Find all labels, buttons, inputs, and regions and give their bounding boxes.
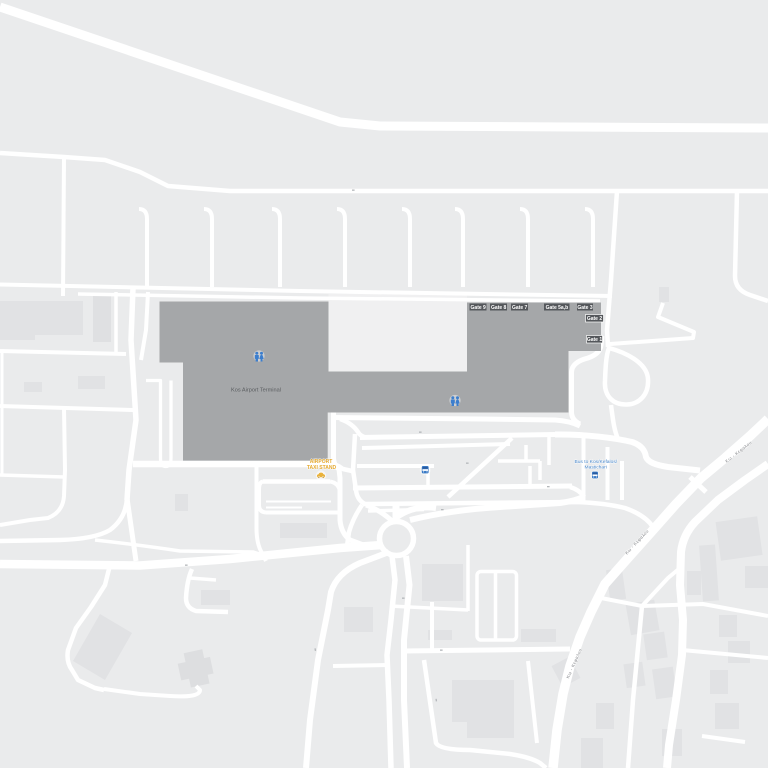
svg-text:TAXI STAND: TAXI STAND [307, 465, 337, 471]
svg-text:Mastichari: Mastichari [585, 465, 607, 471]
svg-text:Bus to Kos/Kefalos/: Bus to Kos/Kefalos/ [574, 459, 617, 465]
svg-text:Gate 5a,b: Gate 5a,b [546, 305, 569, 311]
svg-text:Gate 8: Gate 8 [491, 305, 507, 311]
svg-text:Gate 9: Gate 9 [471, 305, 487, 311]
svg-text:Gate 1: Gate 1 [587, 337, 603, 343]
svg-text:Gate 7: Gate 7 [512, 305, 528, 311]
svg-text:Kos Airport Terminal: Kos Airport Terminal [231, 387, 281, 393]
svg-text:Gate 2: Gate 2 [587, 316, 603, 322]
svg-text:Gate 3: Gate 3 [577, 305, 593, 311]
